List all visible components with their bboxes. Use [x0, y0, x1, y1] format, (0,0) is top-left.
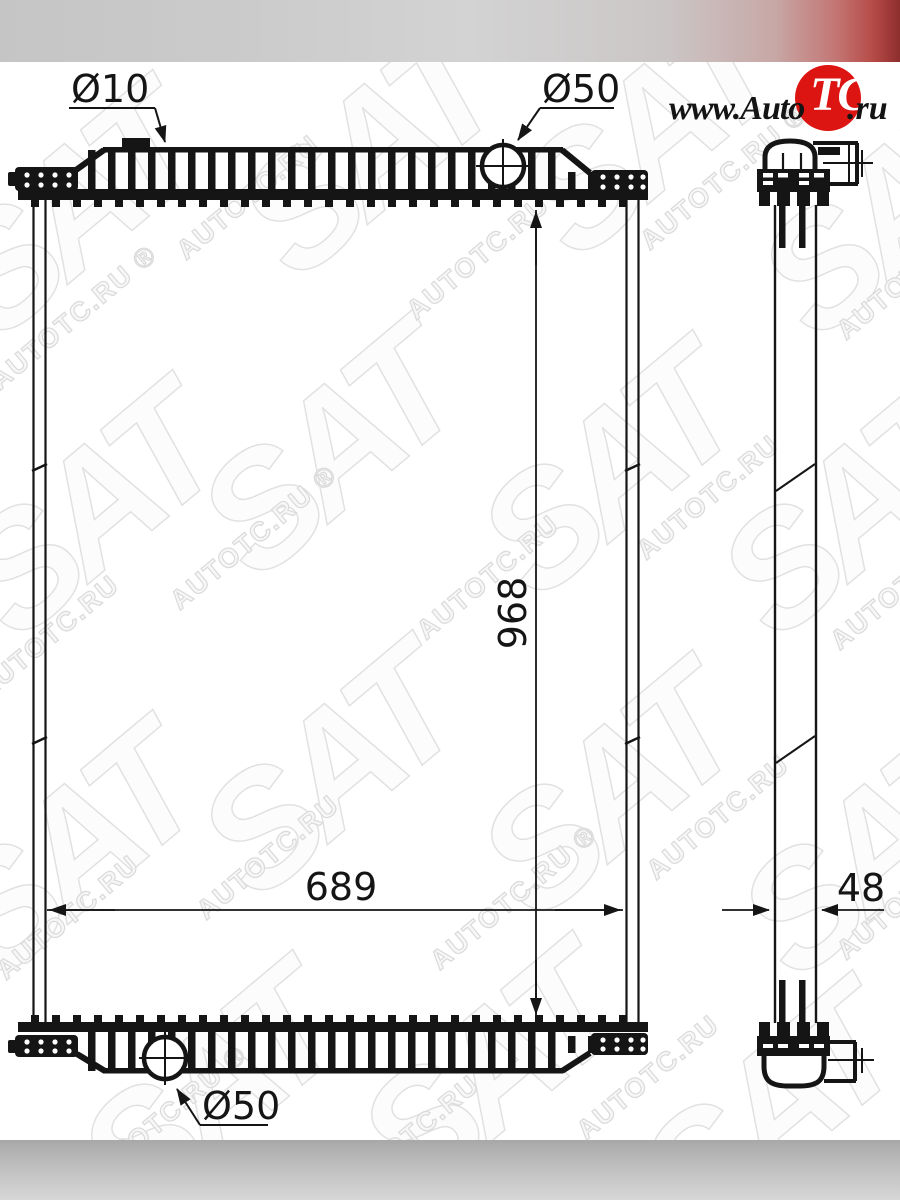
front-bottom-right-bracket	[591, 1033, 648, 1055]
front-bottom-tank	[8, 1015, 648, 1085]
drain-plug-10mm	[122, 138, 150, 148]
side-top-tank	[757, 141, 873, 206]
side-core	[775, 205, 816, 1023]
brand-logo: www.Auto TC .ru	[660, 64, 900, 140]
dimension-core-depth: 48	[722, 866, 885, 910]
front-top-right-bracket	[591, 170, 648, 193]
dimensions: Ø10 Ø50 968 689 48 Ø50	[47, 67, 885, 1128]
dim-label-d50-top: Ø50	[542, 67, 620, 111]
dimension-filler-neck: Ø50	[518, 67, 620, 140]
front-top-left-bracket	[8, 167, 78, 191]
top-gradient-band	[0, 0, 900, 62]
dim-label-689: 689	[305, 865, 378, 909]
radiator-side-view	[757, 141, 874, 1086]
dim-label-48: 48	[837, 866, 885, 910]
brand-url-suffix: .ru	[847, 90, 888, 128]
dimension-core-height: 968	[491, 210, 536, 1016]
front-bottom-left-bracket	[8, 1035, 78, 1057]
side-bottom-tank	[757, 1022, 874, 1086]
brand-url-prefix: www.Auto	[669, 90, 804, 128]
dim-label-d10: Ø10	[71, 67, 149, 111]
dim-label-d50-bottom: Ø50	[202, 1084, 280, 1128]
bottom-gradient-band	[0, 1140, 900, 1200]
dimension-bottom-outlet: Ø50	[177, 1084, 280, 1128]
dimension-top-left-hole: Ø10	[69, 67, 165, 142]
radiator-front-view	[8, 138, 648, 1085]
dim-label-968: 968	[491, 577, 535, 650]
front-top-tank	[8, 138, 648, 207]
product-drawing-page: { "header": { "brand_prefix": "www.Auto"…	[0, 0, 900, 1200]
radiator-technical-drawing: Ø10 Ø50 968 689 48 Ø50	[0, 0, 900, 1200]
